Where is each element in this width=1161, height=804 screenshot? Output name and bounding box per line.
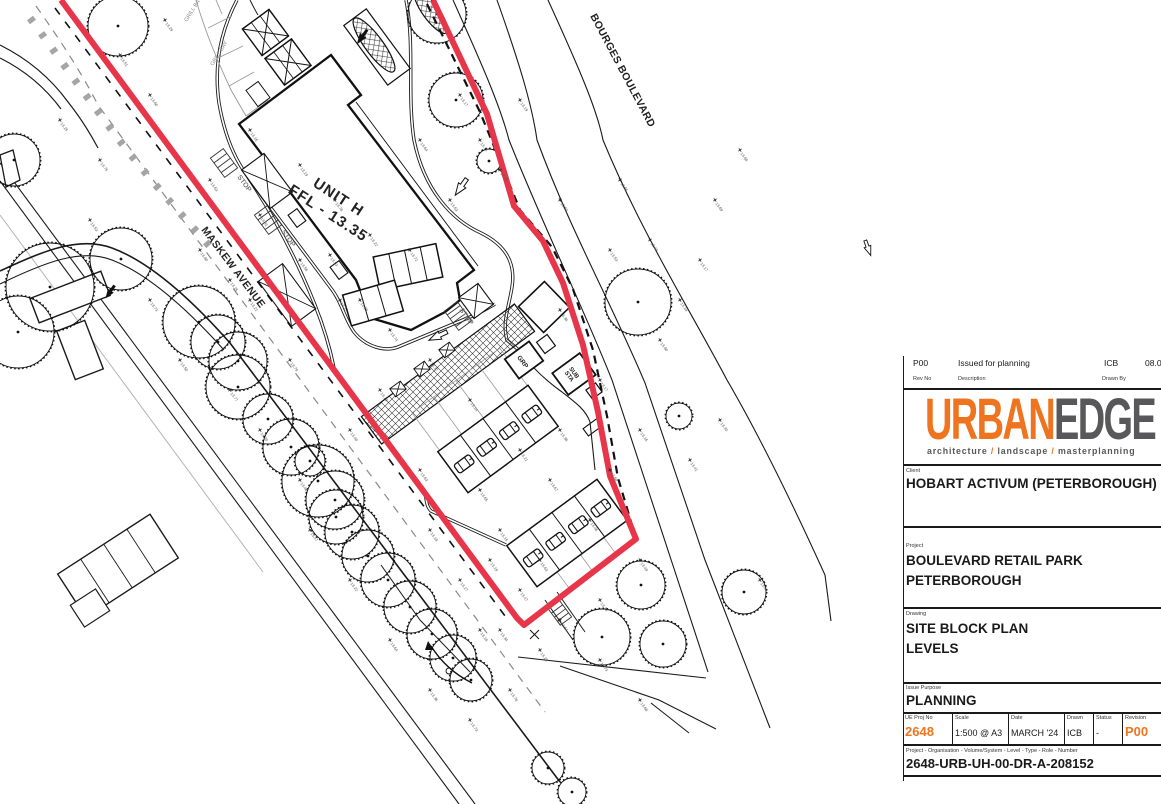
svg-text:13.56: 13.56 bbox=[619, 181, 629, 193]
svg-text:13.18: 13.18 bbox=[679, 301, 689, 313]
svg-text:13.17: 13.17 bbox=[699, 261, 709, 273]
svg-text:13.80: 13.80 bbox=[199, 251, 209, 263]
svg-text:13.68: 13.68 bbox=[739, 151, 749, 163]
svg-text:13.19: 13.19 bbox=[519, 101, 529, 113]
svg-text:13.18: 13.18 bbox=[479, 631, 489, 643]
svg-text:13.38: 13.38 bbox=[559, 311, 569, 323]
svg-text:13.77: 13.77 bbox=[229, 391, 239, 403]
svg-text:13.25: 13.25 bbox=[59, 121, 69, 133]
svg-text:13.64: 13.64 bbox=[419, 141, 429, 153]
svg-text:13.73: 13.73 bbox=[469, 721, 479, 733]
svg-text:13.48: 13.48 bbox=[299, 481, 309, 493]
svg-text:13.17: 13.17 bbox=[459, 96, 469, 108]
svg-text:13.80: 13.80 bbox=[659, 341, 669, 353]
svg-text:13.57: 13.57 bbox=[309, 531, 319, 543]
svg-text:13.33: 13.33 bbox=[719, 421, 729, 433]
svg-text:13.33: 13.33 bbox=[599, 601, 609, 613]
svg-text:13.50: 13.50 bbox=[179, 361, 189, 373]
svg-text:13.50: 13.50 bbox=[559, 201, 569, 213]
svg-text:13.29: 13.29 bbox=[164, 21, 174, 33]
svg-text:13.23: 13.23 bbox=[539, 651, 549, 663]
svg-text:13.48: 13.48 bbox=[649, 241, 659, 253]
svg-text:13.69: 13.69 bbox=[714, 201, 724, 213]
svg-text:BOURGES BOULEVARD: BOURGES BOULEVARD bbox=[587, 12, 657, 130]
svg-text:13.34: 13.34 bbox=[499, 631, 509, 643]
svg-text:13.64: 13.64 bbox=[389, 641, 399, 653]
svg-text:13.75: 13.75 bbox=[99, 161, 109, 173]
svg-text:13.41: 13.41 bbox=[759, 581, 769, 593]
svg-text:13.27: 13.27 bbox=[459, 581, 469, 593]
svg-text:GRILL BAY: GRILL BAY bbox=[184, 0, 204, 23]
svg-text:13.15: 13.15 bbox=[479, 141, 489, 153]
svg-text:13.18: 13.18 bbox=[429, 531, 439, 543]
svg-text:13.68: 13.68 bbox=[639, 701, 649, 713]
svg-text:13.16: 13.16 bbox=[639, 431, 649, 443]
svg-text:13.41: 13.41 bbox=[689, 461, 699, 473]
svg-text:13.54: 13.54 bbox=[559, 621, 569, 633]
svg-text:13.20: 13.20 bbox=[259, 431, 269, 443]
svg-text:13.65: 13.65 bbox=[479, 491, 489, 503]
svg-text:13.60: 13.60 bbox=[149, 96, 159, 108]
svg-text:13.67: 13.67 bbox=[549, 481, 559, 493]
svg-text:13.38: 13.38 bbox=[559, 431, 569, 443]
svg-text:13.73: 13.73 bbox=[599, 661, 609, 673]
svg-text:13.49: 13.49 bbox=[639, 561, 649, 573]
svg-text:13.19: 13.19 bbox=[489, 561, 499, 573]
svg-text:13.63: 13.63 bbox=[209, 181, 219, 193]
svg-text:13.53: 13.53 bbox=[89, 221, 99, 233]
svg-text:13.53: 13.53 bbox=[609, 251, 619, 263]
svg-text:13.78: 13.78 bbox=[509, 691, 519, 703]
svg-text:13.74: 13.74 bbox=[389, 331, 399, 343]
svg-text:13.21: 13.21 bbox=[519, 451, 529, 463]
svg-text:13.31: 13.31 bbox=[259, 216, 269, 228]
svg-text:13.36: 13.36 bbox=[429, 691, 439, 703]
svg-text:13.22: 13.22 bbox=[349, 581, 359, 593]
svg-text:13.51: 13.51 bbox=[119, 56, 129, 68]
svg-text:13.73: 13.73 bbox=[149, 301, 159, 313]
svg-text:13.63: 13.63 bbox=[419, 471, 429, 483]
svg-text:13.40: 13.40 bbox=[349, 431, 359, 443]
svg-text:13.47: 13.47 bbox=[519, 591, 529, 603]
